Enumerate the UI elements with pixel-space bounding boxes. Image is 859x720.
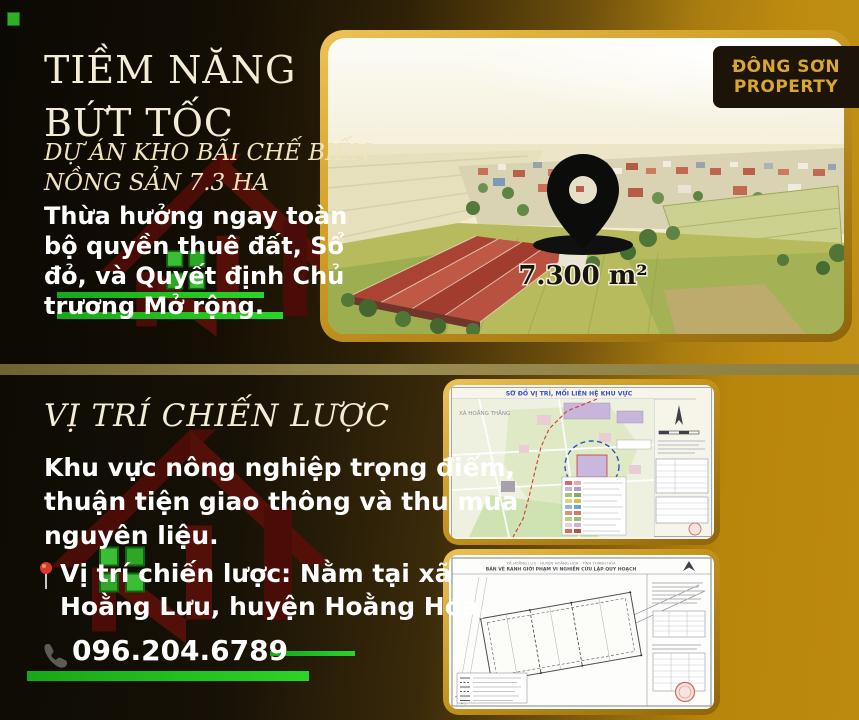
hero-body-line3: đỏ, và Quyết định Chủ [44, 261, 347, 291]
pushpin-icon [38, 561, 54, 591]
brand-name-line2: PROPERTY [734, 77, 838, 97]
hero-section: TIỀM NĂNG BỨT TỐC DỰ ÁN KHO BÃI CHẾ BIẾN… [0, 0, 859, 364]
pin-text-line1: Vị trí chiến lược: Nằm tại xã [60, 557, 488, 590]
map2-sidebar [652, 583, 705, 691]
location-pin-text: Vị trí chiến lược: Nằm tại xã Hoằng Lưu,… [60, 557, 488, 623]
location-body-line3: nguyên liệu. [44, 519, 518, 553]
map1-commune-label: XÃ HOẰNG THẮNG [459, 409, 510, 417]
map2-title-line1: XÃ HOẰNG LƯU - HUYỆN HOẰNG HÓA - TỈNH TH… [506, 561, 616, 566]
phone-number: 096.204.6789 [72, 634, 288, 667]
stamp-icon [676, 683, 695, 702]
map2-legend [457, 673, 527, 703]
map2: XÃ HOẰNG LƯU - HUYỆN HOẰNG HÓA - TỈNH TH… [449, 555, 714, 709]
area-label: 7.300 m² [518, 261, 647, 291]
green-bar-bottom [27, 671, 309, 681]
hero-subtitle-line1: DỰ ÁN KHO BÃI CHẾ BIẾN [44, 138, 371, 168]
location-body: Khu vực nông nghiệp trọng điểm, thuận ti… [44, 451, 518, 553]
stamp-icon [689, 523, 701, 535]
phone-icon [40, 642, 68, 670]
logo-window-fragment [7, 12, 20, 26]
hero-title-line1: TIỀM NĂNG [44, 44, 296, 97]
location-body-line1: Khu vực nông nghiệp trọng điểm, [44, 451, 518, 485]
section-divider [0, 364, 859, 375]
location-section: VỊ TRÍ CHIẾN LƯỢC Khu vực nông nghiệp tr… [0, 375, 859, 720]
hero-body-line1: Thừa hưởng ngay toàn [44, 201, 347, 231]
location-title: VỊ TRÍ CHIẾN LƯỢC [44, 398, 390, 434]
brand-badge: ĐÔNG SƠN PROPERTY [713, 46, 859, 108]
hero-subtitle-line2: NỒNG SẢN 7.3 HA [44, 168, 371, 198]
map1-legend [562, 477, 626, 535]
location-body-line2: thuận tiện giao thông và thu mua [44, 485, 518, 519]
poster: TIỀM NĂNG BỨT TỐC DỰ ÁN KHO BÃI CHẾ BIẾN… [0, 0, 859, 720]
hero-title: TIỀM NĂNG BỨT TỐC [44, 44, 296, 150]
hero-subtitle: DỰ ÁN KHO BÃI CHẾ BIẾN NỒNG SẢN 7.3 HA [44, 138, 371, 198]
brand-name-line1: ĐÔNG SƠN [732, 57, 840, 77]
hero-body-line2: bộ quyền thuê đất, Sổ [44, 231, 347, 261]
hero-body: Thừa hưởng ngay toàn bộ quyền thuê đất, … [44, 201, 347, 321]
hero-body-line4: trương Mở rộng. [44, 291, 347, 321]
pin-text-line2: Hoằng Lưu, huyện Hoằng Hóa, [60, 590, 488, 623]
map2-illustration: XÃ HOẰNG LƯU - HUYỆN HOẰNG HÓA - TỈNH TH… [449, 555, 714, 709]
